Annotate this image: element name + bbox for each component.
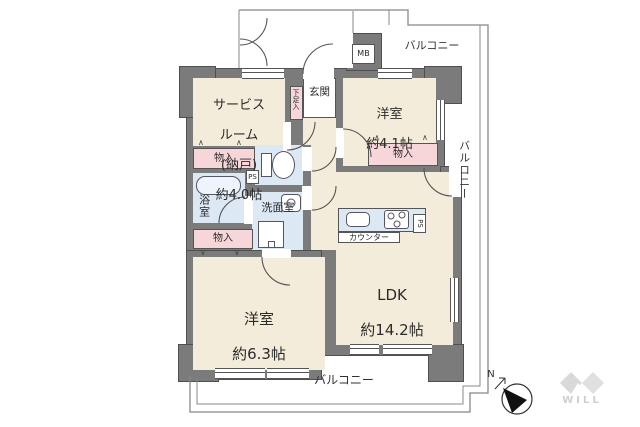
porch-divider (353, 10, 389, 33)
storage-bottom-left-label: 物入 (193, 229, 253, 249)
room63-door-gap (262, 249, 291, 258)
brand-diamond-cut (571, 383, 582, 394)
washroom-label: 洗面室 (250, 202, 306, 215)
compass (495, 378, 532, 414)
bathroom-label: 浴室 (197, 194, 210, 218)
storage-top-left-label: 物入 (193, 148, 255, 169)
brand-diamond-right (582, 372, 604, 394)
balcony-bottom-label: バルコニー (302, 374, 386, 388)
entrance-label: 玄関 (303, 86, 336, 98)
window-room41-right (436, 100, 445, 140)
brand-label: WILL (558, 395, 606, 407)
counter-label: カウンター (338, 232, 400, 243)
front-door-gap (303, 67, 334, 79)
room-63-label: 洋室 約6.3帖 (193, 294, 325, 380)
floor-plan: ∧ ∧ ∨ ∨ ∧ ∧ サービス ルーム (納戸) 約4.0帖 洋室 約4.1帖… (0, 0, 640, 427)
folding-door-icon: ∨ (234, 249, 240, 257)
pipe-space-bath-label: PS (246, 170, 259, 184)
stove-icon (384, 210, 409, 229)
kitchen-sink-icon (346, 212, 370, 227)
window-ldk-right (450, 278, 459, 322)
brand-diamond-left (560, 372, 582, 394)
compass-circle (502, 384, 532, 414)
balcony-right-label: バルコニー (457, 140, 470, 200)
corridor-upper-floor (303, 118, 336, 145)
window-service-top (242, 68, 284, 79)
compass-needle (503, 388, 527, 413)
meter-box-label: MB (352, 44, 375, 64)
pipe-space-kitchen-label: PS (410, 217, 429, 230)
shoe-storage-label: 下足入 (292, 89, 300, 110)
compass-north-label: N (484, 369, 498, 381)
toilet-door-gap (302, 147, 312, 171)
storage-right-label: 物入 (368, 143, 438, 166)
window-room41-top (378, 68, 412, 79)
washing-machine-drain-icon (268, 241, 275, 248)
folding-door-icon: ∨ (200, 249, 206, 257)
brand-logo-icon (560, 372, 604, 394)
ldk-label: LDK 約14.2帖 (336, 270, 448, 356)
balcony-top-label: バルコニー (390, 40, 474, 53)
entrance-porch (239, 11, 353, 68)
corridor-lower-floor (311, 145, 336, 250)
